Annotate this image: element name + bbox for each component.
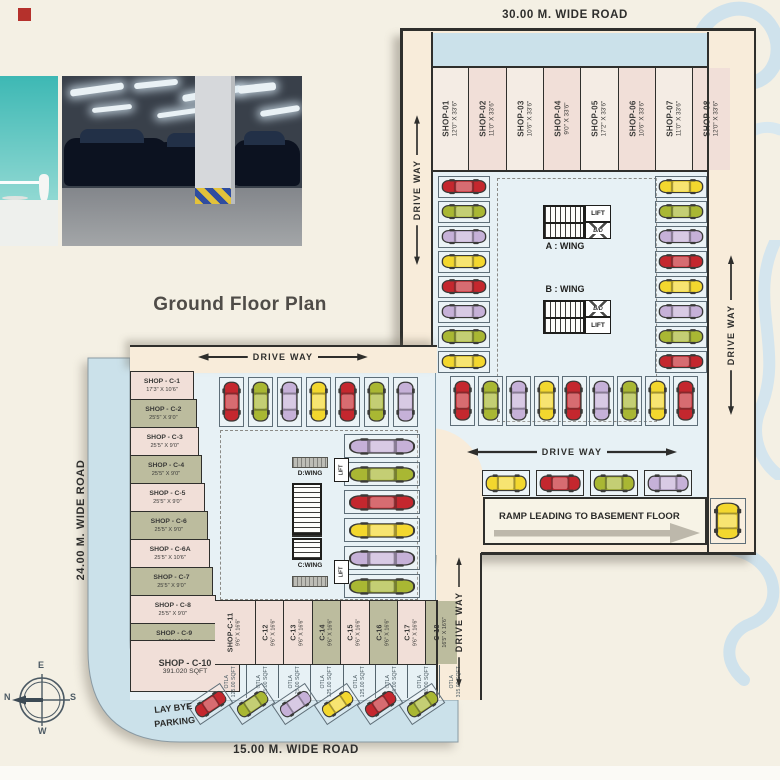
parking-stall bbox=[562, 376, 587, 426]
plan-edge-line bbox=[435, 373, 436, 600]
parking-column-inner bbox=[344, 434, 420, 598]
parking-stall bbox=[482, 470, 530, 496]
arrow-left-icon bbox=[455, 657, 463, 687]
shop-SHOP-03: SHOP-0310'6" X 33'6" bbox=[506, 68, 543, 170]
parking-stall bbox=[534, 376, 559, 426]
duct-box bbox=[292, 576, 328, 587]
parking-stall bbox=[344, 546, 420, 570]
shop-SHOP-07: SHOP-0711'0" X 33'6" bbox=[655, 68, 692, 170]
shop-SHOP-05: SHOP-0517'2" X 33'6" bbox=[580, 68, 617, 170]
parking-stall bbox=[655, 301, 707, 323]
driveway-label-right: DRIVE WAY bbox=[724, 255, 738, 415]
shop-C-15: C-159'6" X 16'6" bbox=[340, 601, 368, 664]
car-green bbox=[658, 328, 704, 345]
left-shops-column: SHOP - C-117'3" X 10'6"SHOP - C-225'5" X… bbox=[130, 373, 218, 653]
shop-SHOP-C-2: SHOP - C-225'5" X 9'0" bbox=[130, 399, 197, 429]
stairs-c-wing bbox=[292, 538, 322, 560]
parking-stall bbox=[248, 377, 273, 427]
parking-stall bbox=[335, 377, 360, 427]
stairs-b-wing bbox=[543, 300, 585, 334]
arrow-left-icon bbox=[198, 353, 248, 361]
car-purple bbox=[658, 228, 704, 245]
d-wing-label: D:WING bbox=[287, 470, 333, 477]
shop-C-14: C-149'6" X 16'6" bbox=[312, 601, 340, 664]
road-label-left: 24.00 M. WIDE ROAD bbox=[75, 440, 87, 600]
parking-stall bbox=[710, 498, 746, 544]
shop-SHOP-01: SHOP-0112'0" X 33'6" bbox=[432, 68, 468, 170]
light-fixture bbox=[92, 104, 132, 113]
shop-SHOP-C-6: SHOP - C-625'5" X 9'0" bbox=[130, 511, 208, 541]
column-hazard-stripes bbox=[195, 188, 231, 204]
table bbox=[0, 200, 58, 246]
parking-stall bbox=[590, 470, 638, 496]
car-purple bbox=[348, 549, 416, 568]
c-wing-label: C:WING bbox=[287, 562, 333, 569]
parking-stall bbox=[506, 376, 531, 426]
parking-stall bbox=[438, 276, 490, 298]
garage-floor bbox=[62, 188, 302, 246]
arrow-left-icon bbox=[467, 448, 537, 456]
parking-stall bbox=[438, 326, 490, 348]
duct-a-wing: B/D bbox=[585, 222, 611, 239]
decor-swirl-bottom-right bbox=[720, 540, 780, 690]
parking-stall bbox=[589, 376, 614, 426]
parking-stall bbox=[655, 176, 707, 198]
wall bbox=[707, 32, 709, 553]
arrow-right-icon bbox=[318, 353, 368, 361]
wall bbox=[292, 535, 322, 537]
shop-C-16: C-169'6" X 16'6" bbox=[369, 601, 397, 664]
stairs-a-wing bbox=[543, 205, 585, 239]
parking-stall bbox=[393, 377, 418, 427]
driveway-label-south: DRIVE WAY bbox=[452, 557, 466, 687]
parking-stall bbox=[655, 251, 707, 273]
parking-stall bbox=[478, 376, 503, 426]
parking-stall bbox=[644, 470, 692, 496]
car-red bbox=[539, 473, 581, 494]
shop-C-12: C-129'6" X 16'6" bbox=[255, 601, 283, 664]
car-purple bbox=[658, 303, 704, 320]
shop-C-17: C-179'6" X 16'6" bbox=[397, 601, 425, 664]
light-fixture bbox=[260, 105, 300, 117]
ground-floor-plan-page: Ground Floor Plan 30.00 M. WIDE ROAD 24.… bbox=[0, 0, 780, 780]
parking-stall bbox=[438, 201, 490, 223]
parking-stall bbox=[655, 326, 707, 348]
parked-car-photo bbox=[234, 140, 300, 186]
compass-south: S bbox=[70, 692, 76, 702]
parking-stall bbox=[344, 518, 420, 542]
bottom-shops-row: SHOP-C-119'6" X 16'6"C-129'6" X 16'6"C-1… bbox=[215, 600, 436, 665]
car-red bbox=[563, 380, 584, 421]
light-fixture bbox=[238, 82, 277, 94]
shelf bbox=[0, 181, 40, 184]
lift-a-wing: LIFT bbox=[585, 205, 611, 222]
car-green bbox=[348, 465, 416, 484]
wall bbox=[432, 66, 708, 68]
parking-stall bbox=[673, 376, 698, 426]
car-purple bbox=[395, 381, 416, 422]
car-purple bbox=[275, 686, 315, 721]
parked-car-photo bbox=[64, 138, 168, 186]
car-yellow bbox=[485, 473, 527, 494]
car-yellow bbox=[658, 278, 704, 295]
wall bbox=[481, 552, 756, 555]
arrow-right-icon bbox=[607, 448, 677, 456]
compass: E N S W bbox=[6, 660, 74, 740]
car-yellow bbox=[348, 521, 416, 540]
parking-stall bbox=[655, 351, 707, 373]
car-green bbox=[348, 577, 416, 596]
wall bbox=[436, 600, 438, 700]
car-yellow bbox=[308, 381, 329, 422]
parking-stall bbox=[277, 377, 302, 427]
car-green bbox=[480, 380, 501, 421]
arrow-left-icon bbox=[727, 370, 735, 415]
shop-SHOP-C-6A: SHOP - C-6A25'5" X 10'6" bbox=[130, 539, 210, 569]
wall bbox=[400, 28, 756, 31]
parking-stall bbox=[645, 376, 670, 426]
arrow-right-icon bbox=[413, 115, 421, 155]
parking-stall bbox=[438, 251, 490, 273]
b-wing-label: B : WING bbox=[525, 284, 605, 294]
scan-margin bbox=[0, 766, 780, 780]
car-red bbox=[360, 686, 400, 721]
vase bbox=[39, 174, 49, 202]
car-yellow bbox=[647, 380, 668, 421]
lift-c-wing: LIFT bbox=[334, 560, 349, 584]
car-red bbox=[348, 493, 416, 512]
parking-row-bottom bbox=[450, 376, 698, 426]
shop-SHOP-C-8: SHOP - C-825'5" X 9'0" bbox=[130, 595, 216, 625]
lift-b-wing: LIFT bbox=[585, 317, 611, 334]
parking-column-left bbox=[438, 176, 490, 373]
parking-stall bbox=[438, 226, 490, 248]
page-title: Ground Floor Plan bbox=[120, 294, 360, 316]
car-green bbox=[402, 686, 442, 721]
car-yellow bbox=[536, 380, 557, 421]
garage-column bbox=[195, 76, 235, 204]
shop-SHOP-C-1: SHOP - C-117'3" X 10'6" bbox=[130, 371, 194, 401]
parking-stall bbox=[344, 462, 420, 486]
wall bbox=[432, 170, 708, 172]
parking-stall bbox=[617, 376, 642, 426]
laybye-parking-row bbox=[190, 692, 442, 740]
ramp-arrow-icon bbox=[494, 523, 700, 543]
car-green bbox=[233, 686, 273, 721]
arrow-left-icon bbox=[413, 225, 421, 265]
shop-SHOP-C-5: SHOP - C-525'5" X 9'0" bbox=[130, 483, 205, 513]
parking-stall bbox=[364, 377, 389, 427]
car-purple bbox=[279, 381, 300, 422]
shop-SHOP-02: SHOP-0211'0" X 33'6" bbox=[468, 68, 505, 170]
parking-stall bbox=[219, 377, 244, 427]
stairs-d-wing bbox=[292, 483, 322, 535]
road-label-bottom: 15.00 M. WIDE ROAD bbox=[196, 744, 396, 756]
road-label-top: 30.00 M. WIDE ROAD bbox=[455, 9, 675, 21]
compass-north: N bbox=[4, 692, 11, 702]
car-green bbox=[441, 203, 487, 220]
car-green bbox=[619, 380, 640, 421]
car-yellow bbox=[441, 253, 487, 270]
light-fixture bbox=[134, 79, 178, 90]
parking-stall bbox=[438, 176, 490, 198]
parking-stall bbox=[536, 470, 584, 496]
wall bbox=[480, 553, 482, 700]
parking-stall bbox=[655, 226, 707, 248]
compass-west: W bbox=[38, 726, 47, 736]
car-green bbox=[250, 381, 271, 422]
shop-SHOP-C-7: SHOP - C-725'5" X 9'0" bbox=[130, 567, 213, 597]
parking-stall bbox=[344, 434, 420, 458]
shop-SHOP-C-4: SHOP - C-425'5" X 9'0" bbox=[130, 455, 202, 485]
wall bbox=[754, 28, 757, 555]
shop-SHOP-04: SHOP-049'0" X 33'6" bbox=[543, 68, 580, 170]
driveway-label-top: DRIVE WAY bbox=[198, 350, 368, 364]
light-fixture bbox=[70, 82, 124, 96]
compass-east: E bbox=[38, 660, 44, 670]
arrow-right-icon bbox=[727, 255, 735, 300]
shop-SHOP-06: SHOP-0610'6" X 33'6" bbox=[618, 68, 655, 170]
a-wing-label: A : WING bbox=[525, 241, 605, 251]
interior-photo-strip bbox=[0, 76, 58, 246]
parking-row-driveway bbox=[482, 470, 692, 496]
top-shops-row: SHOP-0112'0" X 33'6"SHOP-0211'0" X 33'6"… bbox=[432, 68, 708, 170]
car-red bbox=[441, 278, 487, 295]
driveway-label-left: DRIVE WAY bbox=[410, 115, 424, 265]
car-red bbox=[337, 381, 358, 422]
car-red bbox=[441, 178, 487, 195]
car-red bbox=[658, 253, 704, 270]
car-purple bbox=[348, 437, 416, 456]
car-purple bbox=[508, 380, 529, 421]
parking-stall bbox=[438, 301, 490, 323]
ramp-label: RAMP LEADING TO BASEMENT FLOOR bbox=[499, 511, 680, 522]
car-red bbox=[675, 380, 696, 421]
corner-red-mark bbox=[18, 8, 31, 21]
car-green bbox=[441, 328, 487, 345]
duct-box bbox=[292, 457, 328, 468]
duct-b-wing: B/D bbox=[585, 300, 611, 317]
car-yellow bbox=[658, 178, 704, 195]
arrow-right-icon bbox=[455, 557, 463, 587]
parking-stall bbox=[655, 276, 707, 298]
parking-row-top bbox=[219, 377, 418, 427]
car-green bbox=[658, 203, 704, 220]
car-green bbox=[366, 381, 387, 422]
parking-column-right bbox=[655, 176, 707, 373]
car-yellow bbox=[317, 686, 357, 721]
parking-stall bbox=[306, 377, 331, 427]
parking-stall bbox=[344, 490, 420, 514]
car-yellow bbox=[712, 502, 743, 540]
shop-C-13: C-139'6" X 16'6" bbox=[283, 601, 311, 664]
car-purple bbox=[591, 380, 612, 421]
shop-SHOP-C-11: SHOP-C-119'6" X 16'6" bbox=[215, 601, 255, 664]
parking-stall-rampside bbox=[710, 498, 746, 544]
lift-d-wing: LIFT bbox=[334, 458, 349, 482]
car-red bbox=[658, 353, 704, 370]
car-purple bbox=[441, 303, 487, 320]
shop-SHOP-08: SHOP-0812'0" X 33'6" bbox=[692, 68, 729, 170]
parking-stall bbox=[344, 574, 420, 598]
car-purple bbox=[441, 228, 487, 245]
car-purple bbox=[647, 473, 689, 494]
parking-stall bbox=[655, 201, 707, 223]
shop-SHOP-C-3: SHOP - C-325'5" X 9'0" bbox=[130, 427, 199, 457]
garage-photo bbox=[62, 76, 302, 246]
driveway-label-middle: DRIVE WAY bbox=[452, 445, 692, 459]
basement-ramp: RAMP LEADING TO BASEMENT FLOOR bbox=[483, 497, 707, 545]
car-green bbox=[593, 473, 635, 494]
car-red bbox=[221, 381, 242, 422]
